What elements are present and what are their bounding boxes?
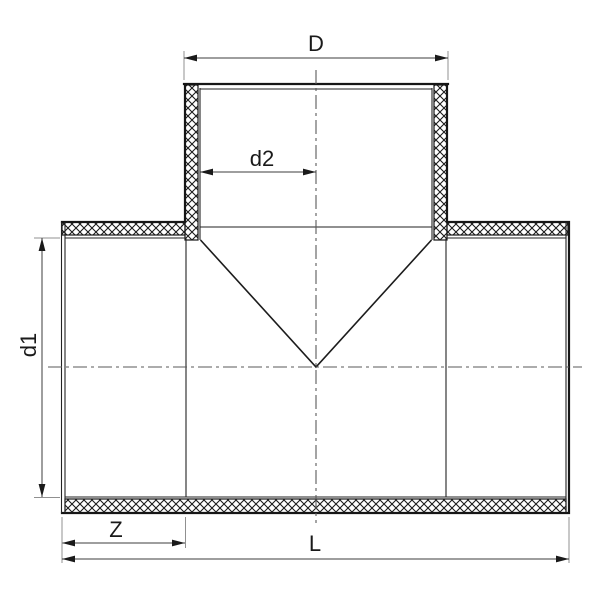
- tee-fitting-technical-drawing: D d2 d1 Z L: [0, 0, 600, 600]
- dimension-D-label: D: [308, 31, 324, 56]
- drawing-canvas: D d2 d1 Z L: [0, 0, 600, 600]
- hatch-run-top-left-wall: [62, 222, 185, 235]
- hatch-run-top-right-wall: [447, 222, 568, 235]
- dimension-Z-label: Z: [109, 517, 122, 542]
- dimension-d1-label: d1: [16, 333, 41, 357]
- hatch-branch-right-wall: [434, 85, 447, 240]
- dimension-d2-label: d2: [250, 146, 274, 171]
- hatch-branch-left-wall: [185, 85, 198, 240]
- dimension-L-label: L: [309, 531, 321, 556]
